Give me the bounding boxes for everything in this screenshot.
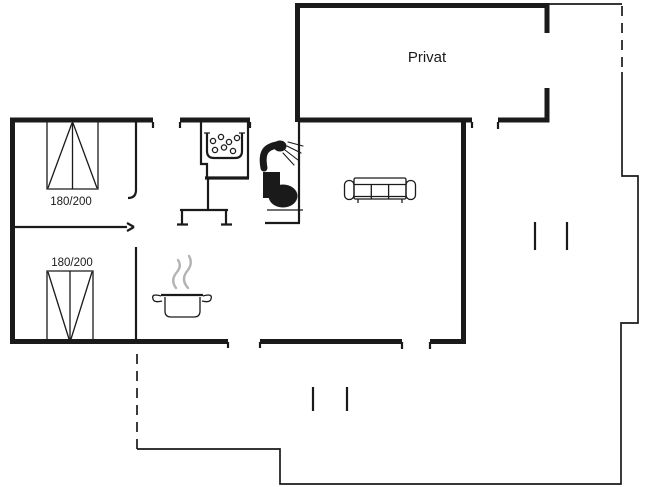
terrace-outline bbox=[137, 4, 638, 484]
double-bed-icon bbox=[47, 122, 98, 189]
shower-icon bbox=[263, 141, 303, 169]
sofa-icon bbox=[345, 178, 416, 203]
opening-ticks bbox=[153, 122, 567, 411]
washbasin-icon bbox=[204, 133, 245, 158]
interior-walls bbox=[12, 122, 300, 342]
cooking-pot-icon bbox=[153, 256, 212, 317]
private-room-label: Privat bbox=[408, 49, 447, 66]
bed-size-label: 180/200 bbox=[50, 196, 92, 208]
double-bed-icon bbox=[47, 271, 93, 340]
bed-size-label: 180/200 bbox=[51, 257, 93, 269]
floor-plan: Privat 180/200 180/200 bbox=[0, 0, 650, 487]
toilet-icon bbox=[263, 172, 303, 210]
